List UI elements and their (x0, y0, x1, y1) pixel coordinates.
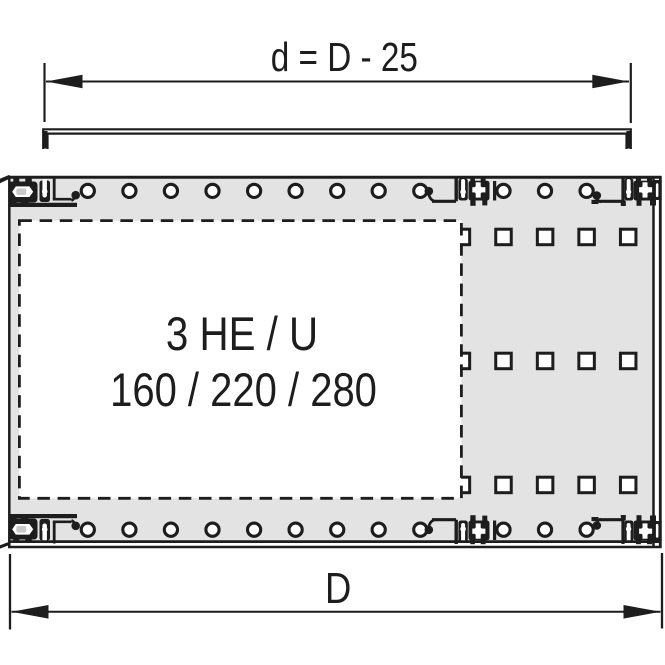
svg-text:160 / 220 / 280: 160 / 220 / 280 (110, 364, 377, 417)
svg-text:3 HE / U: 3 HE / U (166, 308, 318, 361)
svg-text:d = D - 25: d = D - 25 (271, 34, 418, 80)
svg-text:D: D (325, 564, 351, 613)
